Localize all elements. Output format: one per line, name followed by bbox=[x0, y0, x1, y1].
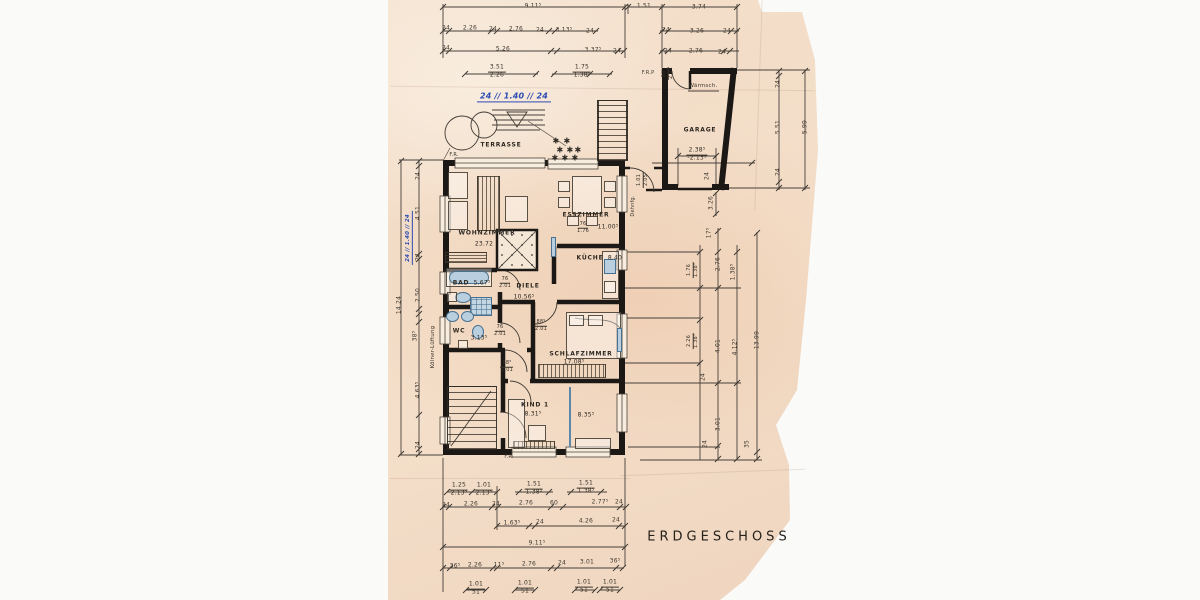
dimension-label: 3.26 bbox=[690, 29, 704, 36]
coffee-table bbox=[505, 196, 528, 222]
floorplan-drawing bbox=[0, 0, 1200, 600]
chair bbox=[558, 197, 570, 208]
dimension-label: 2.76 bbox=[509, 27, 523, 34]
room-area-value: 10.56⁵ bbox=[514, 295, 535, 302]
note-koelner-lueftung: Kölner-Lüftung bbox=[430, 326, 436, 369]
dimension-label: 4.51 bbox=[416, 206, 423, 220]
dimension-label: 24 bbox=[615, 500, 623, 507]
bath-cabinet bbox=[447, 292, 457, 302]
dimension-label: 4.63⁵ bbox=[416, 382, 423, 399]
dimension-label: 1.63⁵ bbox=[504, 521, 521, 528]
dimension-label: 3.01 bbox=[580, 560, 594, 567]
dimension-label: 24 bbox=[442, 26, 450, 33]
dimension-label: 24 bbox=[703, 440, 710, 448]
dimension-pair-label: 1.012.13⁵ bbox=[474, 483, 495, 498]
washbasin bbox=[446, 311, 459, 322]
plant-icon: ✱ bbox=[553, 136, 560, 145]
dimension-label: 4.01 bbox=[716, 339, 723, 353]
dimension-label: 9.11⁵ bbox=[529, 541, 546, 548]
dimension-label: 36⁵ bbox=[450, 564, 461, 571]
dimension-label: 5.99 bbox=[803, 120, 810, 134]
dimension-pair-label: 1.511.38⁵ bbox=[524, 482, 545, 497]
room-area-value: 8.31⁵ bbox=[525, 412, 542, 419]
dimension-pair-label: 762.01 bbox=[497, 277, 513, 290]
dimension-label: 1.51 bbox=[637, 4, 651, 11]
dimension-pair-label: 1.511.38⁵ bbox=[576, 481, 597, 496]
room-label-wc: WC bbox=[453, 329, 466, 336]
desk bbox=[528, 425, 546, 441]
room-area-value: 11.00⁵ bbox=[598, 225, 619, 232]
floorplan-scan: 9.11⁵1.513.74242.26242.76243.13⁵24243.26… bbox=[0, 0, 1200, 600]
dimension-pair-label: 1.761.38⁵ bbox=[687, 261, 700, 279]
dimension-label: 2.26 bbox=[468, 563, 482, 570]
radiator bbox=[617, 328, 622, 352]
dimension-label: 24 bbox=[416, 441, 423, 449]
room-label-wohnzimmer: WOHNZIMMER bbox=[458, 231, 515, 238]
room-area-value: 3.13⁵ bbox=[471, 336, 488, 343]
room-label-kueche: KÜCHE bbox=[577, 256, 604, 263]
room-label-diele: DIELE bbox=[516, 284, 539, 291]
stove bbox=[604, 281, 616, 293]
dimension-label: 3.37⁵ bbox=[585, 48, 602, 55]
sofa bbox=[448, 172, 468, 199]
room-area-value: 8.40 bbox=[608, 256, 622, 263]
dimension-label: 24 bbox=[416, 253, 423, 261]
drawing-title: ERDGESCHOSS bbox=[647, 531, 790, 546]
dimension-label: 24 bbox=[776, 80, 783, 88]
handwritten-note-left: 24 ∕∕ 1.40 ∕∕ 24 bbox=[405, 211, 413, 265]
dimension-pair-label: 1.0151 bbox=[467, 582, 485, 597]
dimension-label: 4.26 bbox=[579, 519, 593, 526]
dimension-label: 1.38⁵ bbox=[731, 264, 738, 281]
staircase bbox=[447, 386, 497, 450]
dimension-pair-label: 1.751.38⁵ bbox=[572, 65, 593, 80]
dimension-pair-label: 1.0151 bbox=[601, 580, 619, 595]
chair bbox=[558, 181, 570, 192]
dimension-pair-label: 1.0151 bbox=[575, 580, 593, 595]
dimension-pair-label: 762.01 bbox=[492, 325, 508, 338]
room-label-garage: GARAGE bbox=[684, 128, 717, 135]
chair bbox=[604, 197, 616, 208]
dimension-pair-label: 3.512.26 bbox=[488, 65, 506, 80]
dimension-label: 24 bbox=[662, 28, 670, 35]
dimension-pair-label: 88⁵2.01 bbox=[499, 361, 515, 374]
room-area-value: 8.35⁵ bbox=[578, 413, 595, 420]
dimension-label: 24 bbox=[416, 172, 423, 180]
dimension-pair-label: 761.76 bbox=[575, 222, 591, 235]
dimension-pair-label: 1.252.13⁵ bbox=[449, 483, 470, 498]
sofa bbox=[448, 201, 468, 230]
room-label-esszimmer: ESSZIMMER bbox=[563, 213, 610, 220]
washbasin bbox=[461, 311, 474, 322]
dimension-label: 2.76 bbox=[689, 49, 703, 56]
dimension-label: 9.11⁵ bbox=[525, 4, 542, 11]
dimension-label: 24 bbox=[536, 28, 544, 35]
pillow bbox=[588, 315, 603, 326]
planned-partition bbox=[569, 387, 571, 447]
dimension-label: 24 bbox=[664, 49, 672, 56]
dimension-label: 13.99 bbox=[755, 331, 762, 349]
dimension-label: 24 bbox=[536, 520, 544, 527]
dimension-label: 24 bbox=[442, 503, 450, 510]
dimension-label: 24 bbox=[492, 502, 500, 509]
note-frp: F.R.P bbox=[642, 71, 655, 77]
dimension-label: 3.26 bbox=[709, 196, 716, 210]
plant-icon: ✱ bbox=[564, 136, 571, 145]
dimension-label: 36⁵ bbox=[610, 559, 621, 566]
dimension-pair-label: 88⁵2.01 bbox=[533, 320, 549, 333]
dimension-label: 24 bbox=[705, 172, 712, 180]
dimension-label: 17⁵ bbox=[707, 228, 714, 239]
dimension-label: 60 bbox=[550, 501, 558, 508]
radiator bbox=[445, 252, 487, 263]
plant-icon: ✱ bbox=[562, 153, 569, 162]
dimension-pair-label: 1.012.05 bbox=[637, 172, 650, 188]
dimension-label: 24 bbox=[558, 561, 566, 568]
dimension-label: 5.26 bbox=[496, 47, 510, 54]
dimension-label: 3.01 bbox=[716, 417, 723, 431]
room-label-terrasse: TERRASSE bbox=[481, 143, 522, 150]
radiator bbox=[551, 237, 556, 257]
room-area-value: 23.72 bbox=[475, 242, 493, 249]
dimension-label: 3.74 bbox=[692, 5, 706, 12]
dimension-label: 24 bbox=[776, 168, 783, 176]
dimension-pair-label: 1.0151 bbox=[516, 581, 534, 596]
dimension-label: 2.76 bbox=[716, 257, 723, 271]
dimension-pair-label: 88⁵2.01 bbox=[662, 65, 675, 81]
room-area-value: 17.08⁵ bbox=[564, 360, 585, 367]
dining-table bbox=[572, 176, 602, 214]
floor-drain bbox=[458, 340, 468, 349]
dimension-pair-label: 2.261.38⁵ bbox=[687, 332, 700, 350]
dimension-label: 24 bbox=[586, 29, 594, 36]
dimension-label: 2.77⁵ bbox=[592, 500, 609, 507]
room-area-value: 5.67⁵ bbox=[474, 281, 491, 288]
dimension-label: 24 bbox=[612, 518, 620, 525]
note-fr-top: F.R. bbox=[449, 153, 458, 159]
pillow bbox=[569, 315, 584, 326]
plant-icon: ✱ bbox=[572, 153, 579, 162]
washbasin bbox=[455, 292, 471, 303]
dimension-label: 38⁵ bbox=[413, 331, 420, 342]
dimension-label: 35 bbox=[745, 440, 752, 448]
dimension-label: 5.51 bbox=[776, 120, 783, 134]
dimension-label: 2.26 bbox=[464, 502, 478, 509]
dimension-label: 24 bbox=[489, 27, 497, 34]
desk bbox=[575, 438, 611, 449]
dimension-label: 24 bbox=[442, 46, 450, 53]
room-label-schlafzimmer: SCHLAFZIMMER bbox=[549, 352, 612, 359]
dimension-label: 24 bbox=[718, 50, 726, 57]
exterior-stair bbox=[597, 100, 628, 161]
dimension-label: 14.24 bbox=[397, 296, 404, 314]
dimension-label: 2.50 bbox=[416, 288, 423, 302]
dimension-label: 2.26 bbox=[463, 26, 477, 33]
room-label-bad: BAD bbox=[453, 281, 470, 288]
chair bbox=[604, 181, 616, 192]
note-fr-bottom: F.R. bbox=[504, 455, 513, 461]
wardrobe bbox=[477, 176, 500, 231]
room-label-kind1: KIND 1 bbox=[521, 403, 549, 410]
note-waermsch: Wärmsch. bbox=[689, 83, 718, 89]
handwritten-note-top: 24 ∕∕ 1.40 ∕∕ 24 bbox=[477, 91, 551, 102]
plant-icon: ✱ bbox=[552, 153, 559, 162]
dimension-label: 11⁵ bbox=[494, 563, 505, 570]
dimension-label: 4.12⁵ bbox=[733, 339, 740, 356]
note-dehnfuge: Dehnfg. bbox=[631, 195, 637, 216]
dimension-label: 3.13⁵ bbox=[556, 28, 573, 35]
dimension-label: 24 bbox=[723, 29, 731, 36]
dimension-label: 24 bbox=[701, 373, 708, 381]
dimension-label: 24 bbox=[613, 49, 621, 56]
dimension-label: 2.76 bbox=[522, 562, 536, 569]
dimension-pair-label: 2.38⁵-2.13⁵ bbox=[685, 148, 708, 163]
dimension-label: 2.76 bbox=[519, 501, 533, 508]
